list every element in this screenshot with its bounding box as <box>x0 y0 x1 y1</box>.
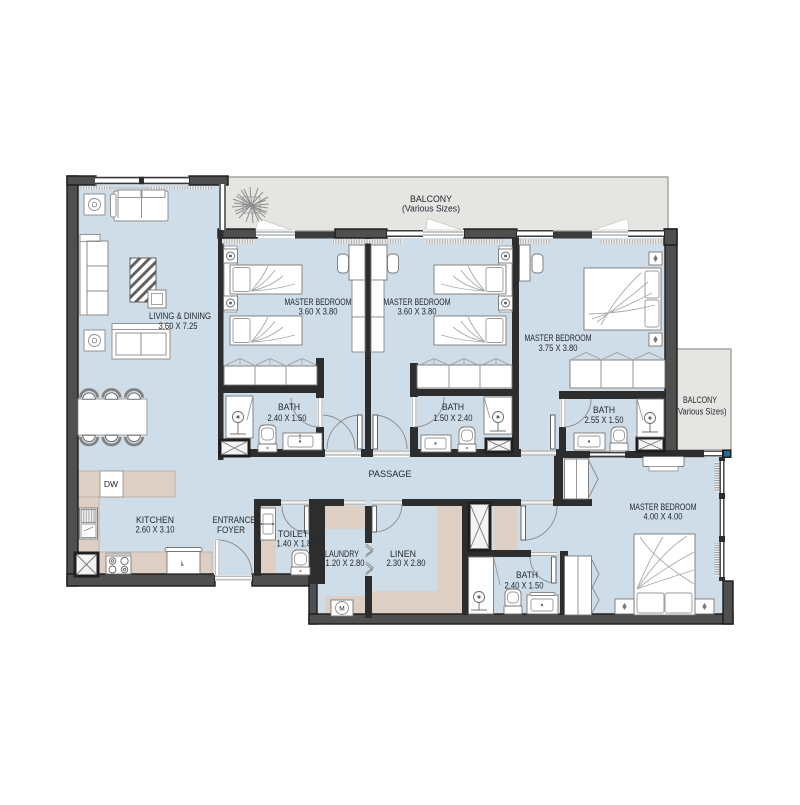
svg-text:2.40 X 1.50: 2.40 X 1.50 <box>505 581 544 592</box>
svg-text:1.40 X 1.80: 1.40 X 1.80 <box>277 539 316 550</box>
svg-text:FOYER: FOYER <box>217 525 245 536</box>
svg-text:4.00 X 4.00: 4.00 X 4.00 <box>644 512 683 523</box>
svg-text:1.20 X 2.80: 1.20 X 2.80 <box>326 558 365 569</box>
svg-text:1.50 X 2.40: 1.50 X 2.40 <box>434 413 473 424</box>
svg-text:BATH: BATH <box>442 402 464 413</box>
svg-text:BATH: BATH <box>278 402 300 413</box>
svg-text:2.60 X 3.10: 2.60 X 3.10 <box>136 525 175 536</box>
svg-text:BATH: BATH <box>516 570 538 581</box>
svg-text:3.60 X 3.80: 3.60 X 3.80 <box>299 307 338 318</box>
svg-text:(Various Sizes): (Various Sizes) <box>402 204 460 214</box>
svg-text:3.60 X 7.25: 3.60 X 7.25 <box>159 321 198 332</box>
svg-text:BALCONY: BALCONY <box>683 395 717 405</box>
svg-text:(Various Sizes): (Various Sizes) <box>676 407 727 417</box>
svg-text:2.55 X 1.50: 2.55 X 1.50 <box>585 415 624 426</box>
svg-text:2.30 X 2.80: 2.30 X 2.80 <box>387 558 426 569</box>
svg-text:PASSAGE: PASSAGE <box>369 469 412 480</box>
svg-text:BALCONY: BALCONY <box>410 194 452 204</box>
svg-text:DW: DW <box>104 479 118 489</box>
svg-text:3.75 X 3.80: 3.75 X 3.80 <box>539 343 578 354</box>
svg-text:3.60 X 3.80: 3.60 X 3.80 <box>398 307 437 318</box>
svg-text:M: M <box>339 606 344 613</box>
svg-text:2.40 X 1.50: 2.40 X 1.50 <box>268 413 307 424</box>
